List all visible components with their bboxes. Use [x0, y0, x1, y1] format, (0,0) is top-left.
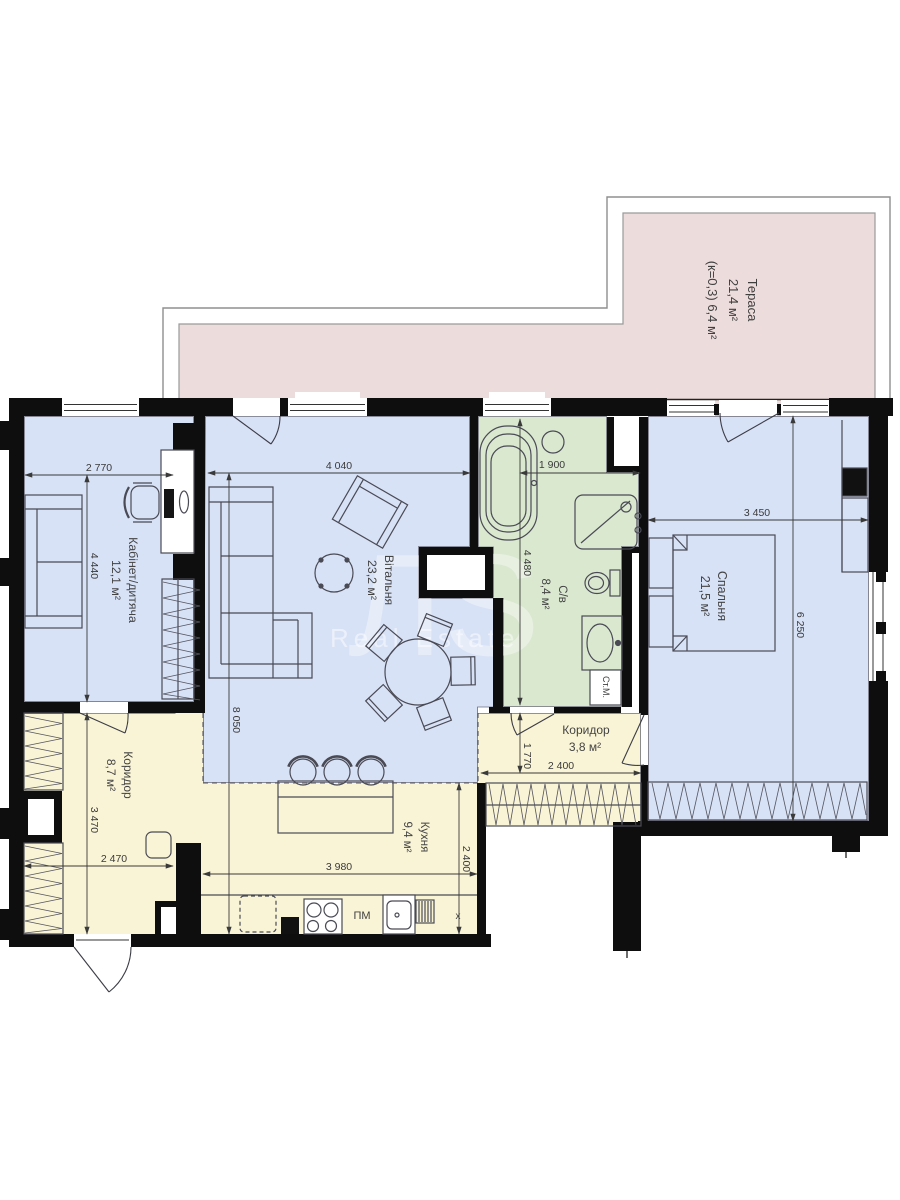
svg-text:3 470: 3 470 [88, 807, 100, 833]
svg-text:4 440: 4 440 [88, 553, 100, 579]
svg-text:3 450: 3 450 [744, 507, 770, 519]
svg-text:3,8 м²: 3,8 м² [569, 740, 601, 754]
svg-text:Коридор: Коридор [562, 723, 610, 737]
svg-text:12,1 м²: 12,1 м² [109, 560, 123, 600]
svg-text:Коридор: Коридор [121, 751, 135, 799]
svg-text:8 050: 8 050 [230, 707, 242, 733]
svg-text:2 770: 2 770 [86, 462, 112, 474]
svg-text:1 770: 1 770 [521, 743, 533, 769]
svg-text:2 470: 2 470 [101, 853, 127, 865]
svg-text:Ст.М.: Ст.М. [601, 676, 611, 698]
svg-text:(к=0,3) 6,4 м²: (к=0,3) 6,4 м² [705, 261, 720, 340]
svg-text:Кухня: Кухня [418, 822, 430, 853]
svg-text:x: x [456, 911, 461, 922]
svg-text:6 250: 6 250 [794, 612, 806, 638]
svg-text:Вітальня: Вітальня [382, 555, 396, 605]
svg-text:3 980: 3 980 [326, 861, 352, 873]
svg-text:8,4 м²: 8,4 м² [539, 579, 551, 610]
svg-text:21,5 м²: 21,5 м² [698, 576, 712, 617]
svg-text:Тераса: Тераса [745, 279, 760, 322]
svg-text:21,4 м²: 21,4 м² [726, 279, 741, 322]
svg-text:С/в: С/в [556, 585, 568, 603]
svg-text:4 040: 4 040 [326, 460, 352, 472]
svg-text:2 400: 2 400 [548, 760, 574, 772]
svg-text:ПМ: ПМ [353, 910, 370, 922]
svg-text:Спальня: Спальня [715, 571, 729, 621]
svg-text:4 480: 4 480 [521, 550, 533, 576]
svg-text:8,7 м²: 8,7 м² [104, 759, 118, 791]
svg-text:1 900: 1 900 [539, 459, 565, 471]
svg-text:Real Estate: Real Estate [330, 623, 519, 653]
svg-text:23,2 м²: 23,2 м² [365, 560, 379, 600]
svg-text:9,4 м²: 9,4 м² [401, 822, 413, 853]
svg-text:Кабінет/дитяча: Кабінет/дитяча [126, 537, 140, 623]
svg-text:2 400: 2 400 [460, 846, 472, 872]
